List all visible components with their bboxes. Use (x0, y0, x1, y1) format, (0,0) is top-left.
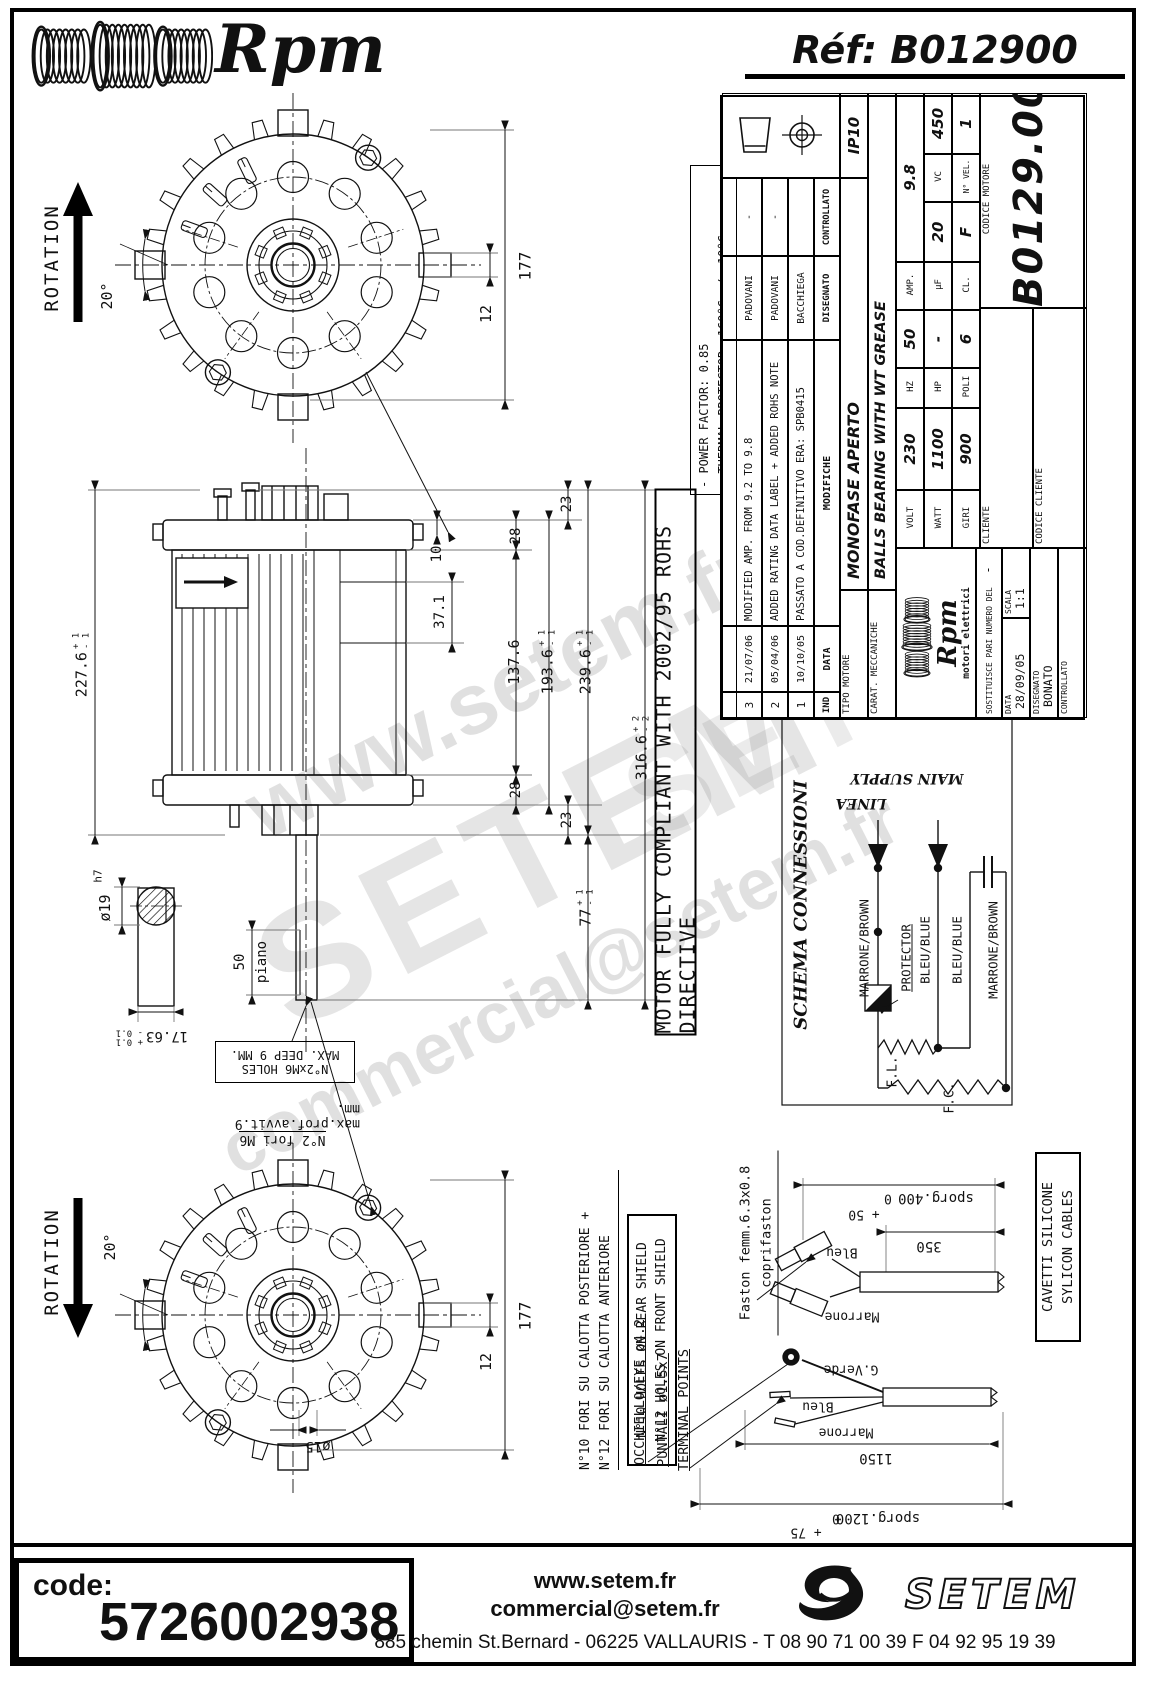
motor-side-view (130, 448, 423, 1055)
footer-email: commercial@setem.fr (450, 1596, 760, 1622)
rev-chk (788, 178, 814, 256)
schema-wire-blue-1: BLEU/BLUE (918, 916, 933, 984)
rpm-coils-logo-small (901, 587, 935, 679)
cable-b-brown-label: Marrone (819, 1425, 874, 1440)
volt-value: 230 (896, 408, 924, 490)
drawing-page: www.setem.fr SETEM commercial@setem.fr .… (0, 0, 1154, 1683)
cable-b-gverde-label: G.Verde (824, 1362, 879, 1377)
schema-title: SCHEMA CONNESSIONI (791, 780, 812, 1029)
projection-target-icon (780, 114, 824, 158)
rohs-banner: MOTOR FULLY COMPLIANT WITH 2002/95 ROHS … (655, 489, 697, 1036)
terminal-points-label: TERMINAL POINTS (676, 1349, 692, 1471)
flat-length-label: 50 (232, 954, 248, 971)
cable-b-sporg-plus: + 75 (790, 1525, 821, 1540)
schema-main-supply: MAIN SUPPLY (851, 770, 964, 786)
dim-316-6: 316.6+ 2- 2 (633, 716, 652, 780)
dim-77: 77+ 1- 1 (577, 889, 596, 926)
rev-header-text: MODIFICHE (814, 340, 840, 626)
vc-value: 450 (924, 93, 952, 154)
rev-date: 05/04/06 (762, 626, 788, 692)
schema-protector: PROTECTOR (899, 924, 914, 992)
hz-value: 50 (896, 310, 924, 368)
setem-logo-text: SETEM (905, 1572, 1081, 1618)
amp-label: AMP. (896, 262, 924, 310)
angle-label-bottom: 20° (101, 1233, 119, 1260)
volt-label: VOLT (896, 490, 924, 548)
rev-by: PADOVANI (736, 256, 762, 340)
footer-site: www.setem.fr (470, 1568, 740, 1594)
cable-b (770, 1349, 997, 1427)
rotation-arrow-down (63, 1198, 93, 1338)
dim-dia15: ø15 (305, 1438, 330, 1454)
footer-divider (10, 1543, 1136, 1547)
poli-label: POLI (952, 368, 980, 408)
faston-label: Faston femm.6.3x0.8coprifaston (735, 1151, 779, 1336)
vc-label: VC (924, 154, 952, 202)
rev-text: PASSATO A COD.DEFINITIVO ERA: SPB0415 (788, 340, 814, 626)
sostituisce-cell: SOSTITUISCE PARI NUMERO DEL - (976, 548, 1002, 718)
cable-a-350: 350 (916, 1238, 941, 1254)
data-cell: DATA 28/09/05 (1002, 618, 1030, 718)
watt-label: WATT (924, 490, 952, 548)
rev-by: BACCHIEGA (788, 256, 814, 340)
carat-value-cell: BALLS BEARING WITH WT GREASE (868, 93, 896, 590)
vel-value: 1 (952, 93, 980, 154)
rotation-arrow-up (63, 182, 93, 322)
controllato-cell: CONTROLLATO (1058, 548, 1087, 718)
cl-label: CL. (952, 262, 980, 310)
rev-ind: 2 (762, 692, 788, 718)
cable-a-sporg: sporg.400 (898, 1190, 974, 1206)
rev-header-by: DISEGNATO (814, 256, 840, 340)
rev-chk: - (762, 178, 788, 256)
poli-value: 6 (952, 310, 980, 368)
brand-name: Rpm (935, 599, 961, 666)
silicone-cables-box: CAVETTI SILICONESYLICON CABLES (1035, 1152, 1081, 1342)
rev-date: 10/10/05 (788, 626, 814, 692)
cable-b-sporg-zero: 0 (832, 1511, 840, 1526)
m6-holes-box-en: N°2xM6 HOLESMAX. DEEP 9 MM. (215, 1041, 355, 1083)
cable-a (770, 1231, 1004, 1316)
dim-177-top: 177 (516, 252, 535, 281)
projection-cone-icon (738, 109, 772, 163)
schema-wire-blue-2: BLEU/BLUE (950, 916, 965, 984)
schema-wire-brown-right: MARRONE/BROWN (986, 901, 1001, 999)
cable-b-1150: 1150 (859, 1450, 893, 1466)
dim-137-6: 137.6 (505, 639, 523, 684)
cl-value: F (952, 202, 980, 262)
tipo-label-cell: TIPO MOTORE (840, 590, 868, 718)
rev-ind: 3 (736, 692, 762, 718)
scala-cell: SCALA 1:1 (1002, 548, 1030, 618)
codice-motore-cell: CODICE MOTORE B0129.00 (980, 93, 1087, 308)
dim-177-bottom: 177 (516, 1302, 535, 1331)
rev-header-ind: IND (814, 692, 840, 718)
projection-symbol-cell (722, 93, 840, 178)
schema-fl: F.L. (886, 1056, 901, 1087)
dim-227-6: 227.6+ 1- 1 (73, 633, 92, 697)
cable-a-brown-label: Marrone (825, 1309, 880, 1324)
dim-193-6: 193.6+ 1- 1 (539, 630, 558, 694)
rev-header-date: DATA (814, 626, 840, 692)
codice-cliente-cell: CODICE CLIENTE (1033, 308, 1087, 548)
rev-header-chk: CONTROLLATO (814, 178, 840, 256)
rev-text: MODIFIED AMP. FROM 9.2 TO 9.8 (736, 340, 762, 626)
dim-37-1: 37.1 (432, 595, 448, 629)
schema-fc: F.C. (943, 1082, 958, 1113)
amp-value: 9.8 (896, 93, 924, 262)
uf-value: 20 (924, 202, 952, 262)
ip-rating-cell: IP10 (840, 93, 868, 178)
dim-12-bottom: 12 (477, 1353, 495, 1371)
angle-label-top: 20° (98, 282, 116, 309)
dim-239-6: 239.6+ 1- 1 (577, 630, 596, 694)
hp-value: - (924, 310, 952, 368)
dim-28-top: 28 (508, 528, 524, 545)
rev-by: PADOVANI (762, 256, 788, 340)
m6-holes-label-it: N°2 fori M6max.prof.avvit.9 mm. (205, 1104, 360, 1144)
footer-address: 885 chemin St.Bernard - 06225 VALLAURIS … (300, 1632, 1130, 1654)
cliente-cell: CLIENTE (980, 308, 1033, 548)
rev-date: 21/07/06 (736, 626, 762, 692)
dim-28-bottom: 28 (508, 782, 524, 799)
shaft-fit-label: h7 (92, 869, 105, 882)
carat-label-cell: CARAT. MECCANICHE (868, 590, 896, 718)
disegnato-cell: DISEGNATO BONATO (1030, 548, 1058, 718)
shaft-dia-label: ø19 (96, 894, 114, 921)
cable-b-sporg: sporg.1200 (836, 1510, 920, 1526)
hz-label: HZ (896, 368, 924, 408)
hp-label: HP (924, 368, 952, 408)
dim-10: 10 (429, 546, 445, 563)
uf-label: µF (924, 262, 952, 310)
puntali-label: PUNTALI ø1.5x7 (655, 1353, 671, 1467)
rev-chk: - (736, 178, 762, 256)
rotation-label-bottom: ROTATION (41, 1208, 63, 1316)
wiring-diagram (782, 695, 1012, 1105)
tipo-value-cell: MONOFASE APERTO (840, 178, 868, 590)
giri-value: 900 (952, 408, 980, 490)
shaft-width-label: 17.63+ 0.1- 0.1 (116, 1027, 188, 1046)
cable-a-blue-label: Bleu (826, 1245, 857, 1260)
brand-cell: Rpm motori elettrici (896, 548, 976, 718)
flat-name-label: piano (254, 941, 270, 983)
vel-label: N° VEL. (952, 154, 980, 202)
motor-code-value: B0129.00 (1006, 94, 1052, 307)
eye-label: OCCHIELLO/EYE ø4.2 (632, 1319, 648, 1465)
schema-linea: LINEA (836, 795, 887, 811)
brand-subtitle: motori elettrici (961, 587, 972, 679)
watt-value: 1100 (924, 408, 952, 490)
cable-b-blue-label: Bleu (802, 1399, 833, 1414)
fori-calotta-label: N°10 FORI SU CALOTTA POSTERIORE +N°12 FO… (573, 1170, 619, 1470)
title-block: 3 21/07/06 MODIFIED AMP. FROM 9.2 TO 9.8… (720, 95, 1085, 720)
cable-a-sporg-zero: 0 (884, 1191, 892, 1206)
dim-23-top: 23 (559, 496, 575, 513)
dim-23-bottom: 23 (559, 812, 575, 829)
dim-12-top: 12 (477, 305, 495, 323)
giri-label: GIRI (952, 490, 980, 548)
schema-wire-brown-left: MARRONE/BROWN (857, 899, 872, 997)
rev-ind: 1 (788, 692, 814, 718)
rotation-label-top: ROTATION (41, 204, 63, 312)
cable-a-sporg-plus: + 50 (848, 1207, 879, 1222)
rev-text: ADDED RATING DATA LABEL + ADDED ROHS NOT… (762, 340, 788, 626)
setem-logo-swirl (790, 1558, 900, 1626)
